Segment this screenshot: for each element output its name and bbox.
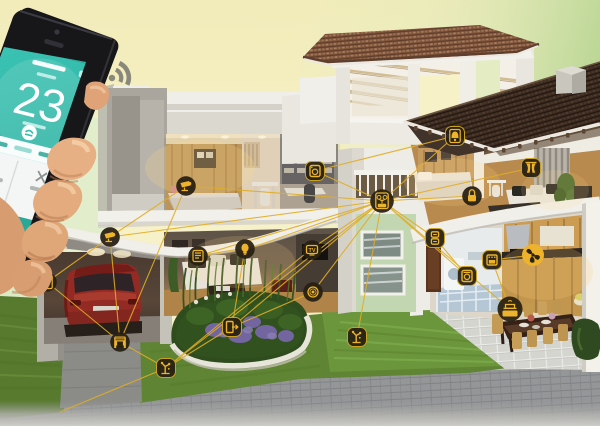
svg-text:TV: TV bbox=[308, 248, 315, 254]
